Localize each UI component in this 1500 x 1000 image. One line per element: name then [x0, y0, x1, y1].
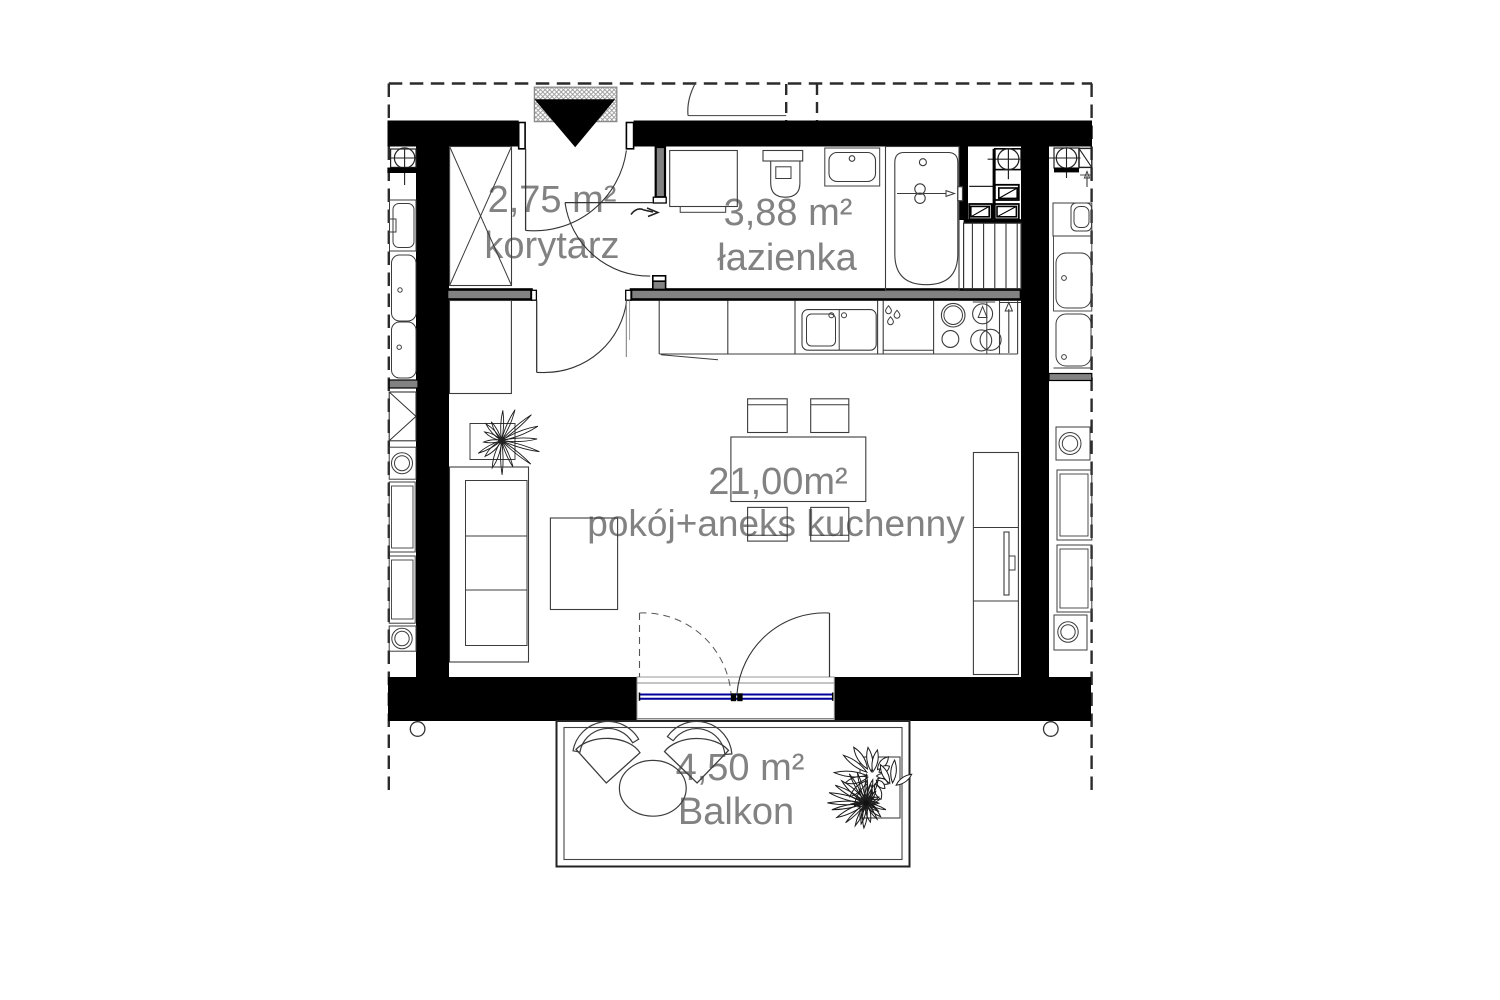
- svg-text:3,88 m²: 3,88 m²: [724, 192, 853, 234]
- svg-text:korytarz: korytarz: [484, 225, 619, 267]
- svg-text:21,00m²: 21,00m²: [708, 461, 847, 503]
- svg-text:4,50 m²: 4,50 m²: [676, 747, 805, 789]
- svg-text:Balkon: Balkon: [678, 791, 794, 833]
- svg-text:2,75 m²: 2,75 m²: [488, 179, 617, 221]
- svg-text:pokój+aneks kuchenny: pokój+aneks kuchenny: [587, 503, 965, 544]
- svg-text:łazienka: łazienka: [717, 237, 857, 279]
